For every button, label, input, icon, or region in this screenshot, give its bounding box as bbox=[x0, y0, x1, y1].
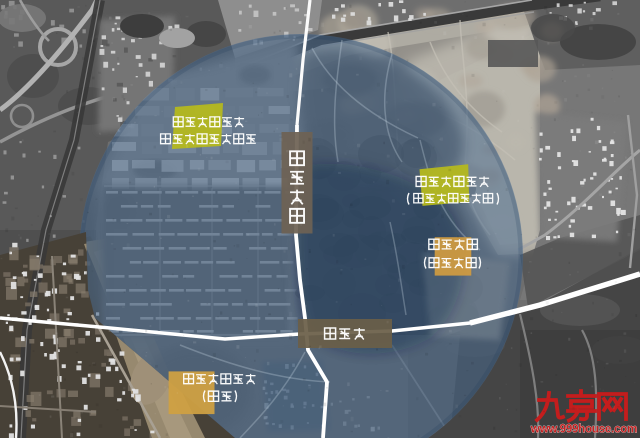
svg-text:www.999house.com: www.999house.com bbox=[530, 423, 637, 436]
